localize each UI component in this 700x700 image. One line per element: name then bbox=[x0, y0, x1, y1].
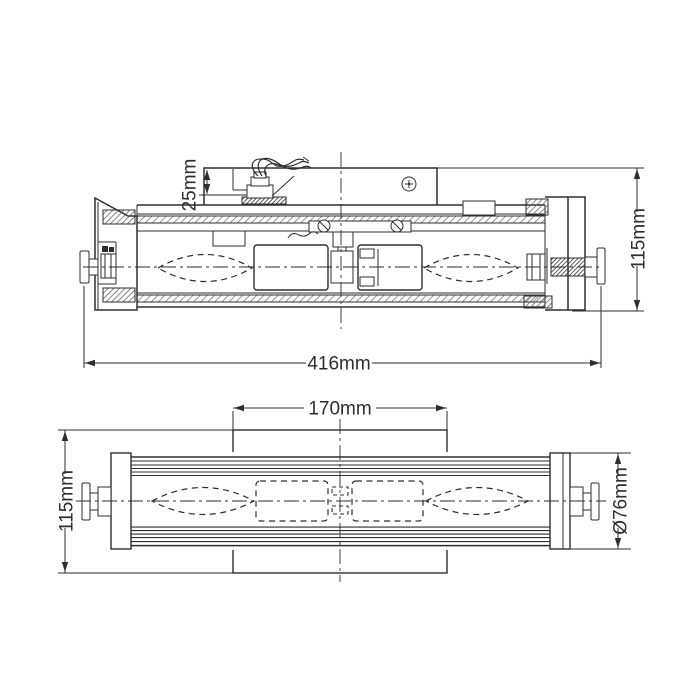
lamp-bulb-right bbox=[424, 255, 518, 282]
adjustment-knob-right bbox=[585, 248, 605, 284]
screw-head-icon bbox=[402, 177, 416, 191]
dimension-recess-depth: 25mm bbox=[180, 159, 222, 212]
drawing-page: 25mm 115mm 416mm bbox=[0, 0, 700, 700]
dimension-label: 115mm bbox=[629, 208, 650, 270]
front-knob-left bbox=[82, 483, 111, 520]
dimension-overall-height-side: 115mm bbox=[437, 168, 650, 311]
lampholder-left bbox=[254, 245, 328, 290]
break-mark bbox=[288, 232, 318, 238]
left-end-cap bbox=[80, 198, 137, 310]
front-elevation-view: 170mm 115mm Ø76mm bbox=[57, 399, 632, 582]
dimension-label: 416mm bbox=[307, 354, 370, 375]
dimension-label: 170mm bbox=[308, 399, 371, 420]
wire-connector bbox=[242, 172, 286, 204]
technical-drawing: 25mm 115mm 416mm bbox=[0, 0, 700, 700]
lamp-bulb-left bbox=[158, 255, 252, 282]
dimension-label: 25mm bbox=[180, 159, 201, 212]
lampholder-right bbox=[358, 245, 422, 290]
side-section-view: 25mm 115mm 416mm bbox=[80, 152, 650, 375]
dimension-label: Ø76mm bbox=[611, 467, 632, 535]
front-knob-right bbox=[570, 483, 599, 520]
dimension-label: 115mm bbox=[57, 470, 78, 532]
